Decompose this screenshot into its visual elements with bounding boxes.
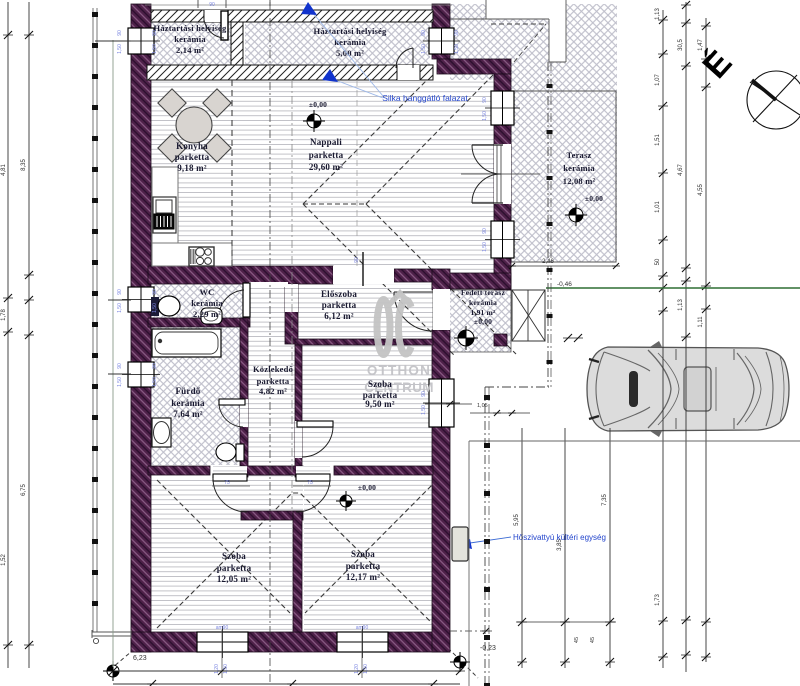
svg-text:1,11: 1,11 <box>698 316 704 328</box>
svg-text:4,55: 4,55 <box>698 184 704 196</box>
svg-text:1,51: 1,51 <box>655 134 661 146</box>
svg-text:7,64 m²: 7,64 m² <box>173 409 203 419</box>
svg-text:1,50: 1,50 <box>152 303 158 313</box>
svg-text:kerámia: kerámia <box>563 163 595 173</box>
svg-text:12,17 m²: 12,17 m² <box>346 572 380 582</box>
svg-text:12,08 m²: 12,08 m² <box>563 176 596 186</box>
svg-text:9,50 m²: 9,50 m² <box>365 399 395 409</box>
svg-text:90: 90 <box>152 363 158 369</box>
svg-text:±0,00: ±0,00 <box>474 317 492 326</box>
svg-text:1,50: 1,50 <box>152 44 158 54</box>
svg-text:1,50: 1,50 <box>117 303 123 313</box>
svg-text:90: 90 <box>209 2 215 8</box>
svg-text:2,14 m²: 2,14 m² <box>176 45 204 55</box>
svg-text:3,85: 3,85 <box>557 539 563 551</box>
svg-text:parketta: parketta <box>175 152 210 162</box>
svg-text:90: 90 <box>354 257 360 263</box>
svg-text:50: 50 <box>655 258 661 265</box>
svg-text:4,82 m²: 4,82 m² <box>259 386 287 396</box>
svg-text:1,20: 1,20 <box>214 664 220 674</box>
svg-text:kerámia: kerámia <box>334 37 366 47</box>
svg-text:1,50: 1,50 <box>152 377 158 387</box>
svg-text:kerámia: kerámia <box>191 298 223 308</box>
svg-text:1,50: 1,50 <box>421 405 427 415</box>
svg-text:90: 90 <box>117 363 123 369</box>
svg-text:1,78: 1,78 <box>1 309 7 321</box>
svg-text:5,95: 5,95 <box>514 514 520 526</box>
svg-text:1,91 m²: 1,91 m² <box>471 308 496 317</box>
svg-text:parketta: parketta <box>309 150 344 160</box>
svg-text:±0,00: ±0,00 <box>585 194 603 203</box>
svg-text:1,50: 1,50 <box>117 44 123 54</box>
svg-text:parketta: parketta <box>346 561 381 571</box>
svg-text:90: 90 <box>421 391 427 397</box>
svg-text:kerámia: kerámia <box>174 34 206 44</box>
svg-text:1,50: 1,50 <box>363 664 369 674</box>
svg-text:parketta: parketta <box>322 300 357 310</box>
svg-text:90: 90 <box>421 30 427 36</box>
svg-text:am90: am90 <box>216 625 229 631</box>
svg-text:am90: am90 <box>356 625 369 631</box>
svg-text:1,50: 1,50 <box>482 242 488 252</box>
svg-text:90: 90 <box>454 30 460 36</box>
svg-text:Fürdő: Fürdő <box>175 386 200 396</box>
svg-text:Közlekedő: Közlekedő <box>253 364 293 374</box>
svg-text:75: 75 <box>224 480 230 486</box>
svg-text:parketta: parketta <box>217 563 252 573</box>
svg-text:2,29 m²: 2,29 m² <box>193 309 221 319</box>
svg-text:1,13: 1,13 <box>655 8 661 20</box>
svg-text:4,81: 4,81 <box>1 164 7 176</box>
svg-text:1,52: 1,52 <box>1 554 7 566</box>
svg-text:Silka hanggátló falazat: Silka hanggátló falazat <box>382 93 468 103</box>
svg-text:7,35: 7,35 <box>602 494 608 506</box>
svg-text:45: 45 <box>590 637 596 643</box>
svg-text:Szoba: Szoba <box>351 549 375 559</box>
svg-text:1,50: 1,50 <box>117 377 123 387</box>
svg-text:90: 90 <box>482 228 488 234</box>
svg-text:1,47: 1,47 <box>698 39 704 51</box>
svg-text:Nappali: Nappali <box>310 137 342 147</box>
svg-text:45: 45 <box>574 637 580 643</box>
svg-text:1,07: 1,07 <box>655 74 661 86</box>
svg-text:90: 90 <box>152 289 158 295</box>
svg-text:1,50: 1,50 <box>482 111 488 121</box>
svg-text:Háztartási helyiség: Háztartási helyiség <box>154 23 228 33</box>
svg-text:Előszoba: Előszoba <box>321 289 357 299</box>
svg-text:1,01: 1,01 <box>655 201 661 213</box>
svg-text:90: 90 <box>117 289 123 295</box>
svg-text:90: 90 <box>117 30 123 36</box>
svg-text:1,13: 1,13 <box>678 299 684 311</box>
svg-text:29,60 m²: 29,60 m² <box>309 162 343 172</box>
svg-text:6,12 m²: 6,12 m² <box>324 311 354 321</box>
svg-text:8,35: 8,35 <box>21 159 27 171</box>
svg-text:OTTHON: OTTHON <box>367 363 431 378</box>
svg-text:-0,46: -0,46 <box>557 281 572 288</box>
svg-text:75: 75 <box>307 480 313 486</box>
svg-text:1,50: 1,50 <box>421 44 427 54</box>
svg-text:-0,23: -0,23 <box>480 645 496 652</box>
svg-text:kerámia: kerámia <box>171 398 205 408</box>
svg-text:90: 90 <box>482 97 488 103</box>
svg-text:1,50: 1,50 <box>454 44 460 54</box>
svg-text:Konyha: Konyha <box>176 141 208 151</box>
svg-text:1,73: 1,73 <box>655 594 661 606</box>
svg-text:1,20: 1,20 <box>354 664 360 674</box>
svg-text:±0,00: ±0,00 <box>358 483 376 492</box>
svg-text:12,05 m²: 12,05 m² <box>217 574 251 584</box>
svg-text:Szoba: Szoba <box>368 379 392 389</box>
svg-text:30,5: 30,5 <box>678 39 684 51</box>
svg-text:Terasz: Terasz <box>567 150 592 160</box>
svg-text:Fedett terasz: Fedett terasz <box>461 288 506 297</box>
svg-text:Szoba: Szoba <box>222 551 246 561</box>
svg-text:±0,00: ±0,00 <box>309 100 327 109</box>
svg-text:kerámia: kerámia <box>469 298 497 307</box>
svg-text:WC: WC <box>199 287 214 297</box>
svg-text:1,50: 1,50 <box>223 664 229 674</box>
svg-text:parketta: parketta <box>257 376 290 386</box>
svg-text:90: 90 <box>152 30 158 36</box>
svg-text:6,23: 6,23 <box>133 655 147 662</box>
svg-text:6,75: 6,75 <box>21 484 27 496</box>
svg-text:4,67: 4,67 <box>678 164 684 176</box>
svg-text:9,18 m²: 9,18 m² <box>177 163 207 173</box>
svg-text:1,05: 1,05 <box>477 403 488 409</box>
